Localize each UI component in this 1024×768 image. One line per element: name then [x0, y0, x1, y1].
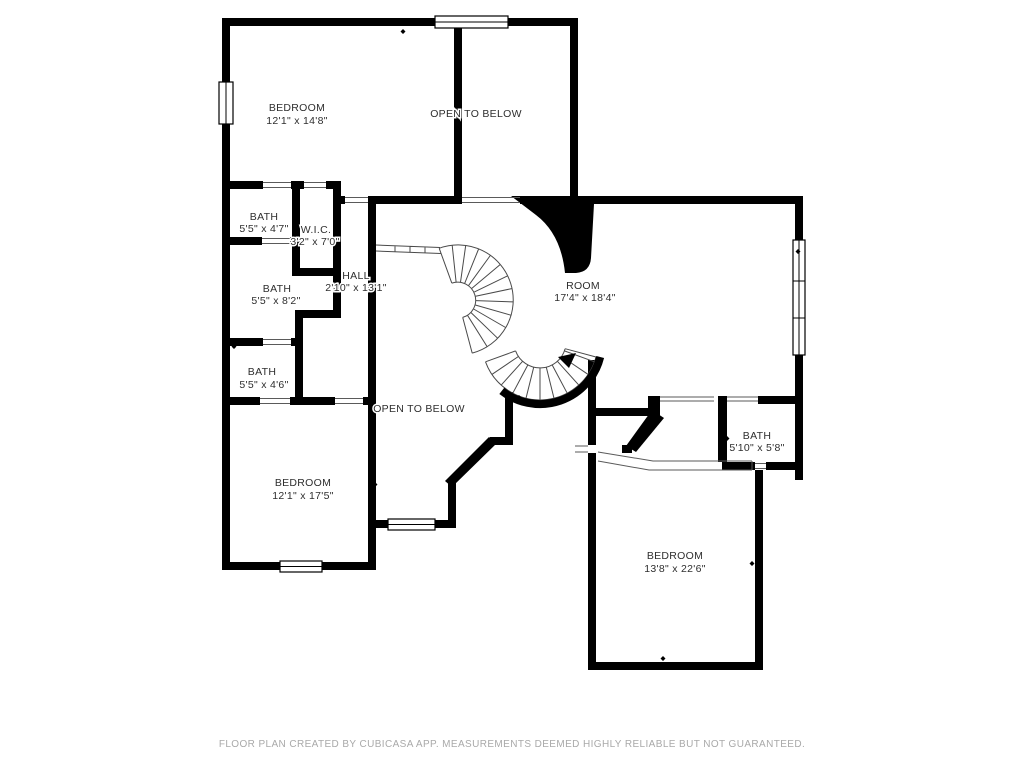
- wall-segment: [290, 397, 335, 405]
- wall-segment: [222, 18, 578, 26]
- room-dims: 5'5" x 8'2": [251, 295, 300, 307]
- room-dims: 12'1" x 17'5": [272, 490, 334, 502]
- room-label: BEDROOM: [269, 102, 325, 114]
- floor-plan-canvas: BEDROOM 12'1" x 14'8" OPEN TO BELOW BATH…: [0, 0, 1024, 768]
- wall-segment: [368, 204, 376, 570]
- wall-segment: [592, 408, 650, 416]
- wall-segment: [588, 662, 763, 670]
- room-label: BATH: [250, 211, 278, 223]
- window: [388, 519, 435, 530]
- wall-segment: [588, 453, 596, 670]
- room-dims: 5'5" x 4'7": [239, 223, 288, 235]
- room-label: OPEN TO BELOW: [373, 403, 465, 415]
- wall-segment: [222, 338, 263, 346]
- window: [280, 561, 322, 572]
- wall-segment: [722, 462, 755, 470]
- wall-segment: [368, 196, 462, 204]
- room-dims: 5'10" x 5'8": [729, 442, 784, 454]
- room-dims: 17'4" x 18'4": [554, 292, 616, 304]
- window: [435, 16, 508, 28]
- room-label: OPEN TO BELOW: [430, 108, 522, 120]
- wall-segment: [758, 396, 803, 404]
- wall-segment: [578, 196, 803, 204]
- window: [219, 82, 233, 124]
- wall-segment: [333, 181, 341, 318]
- stair-outer-wall-arc: [502, 357, 600, 404]
- room-dims: 3'2" x 7'0": [290, 236, 339, 248]
- room-dims: 12'1" x 14'8": [266, 115, 328, 127]
- wall-diagonal: [445, 437, 497, 487]
- wall-segment: [295, 310, 303, 405]
- room-dims: 2'10" x 13'1": [325, 282, 387, 294]
- wall-segment: [292, 181, 300, 276]
- stair-direction-arrow-icon: [558, 353, 576, 368]
- wall-segment: [570, 18, 578, 196]
- wall-segment: [755, 470, 763, 670]
- room-labels: BEDROOM 12'1" x 14'8" OPEN TO BELOW BATH…: [239, 102, 784, 575]
- wall-segment: [292, 268, 341, 276]
- room-label: BATH: [263, 283, 291, 295]
- room-label: HALL: [342, 270, 369, 282]
- wall-segment: [795, 470, 803, 480]
- wall-segment: [766, 462, 803, 470]
- wall-segment: [222, 237, 262, 245]
- curved-wall: [511, 196, 594, 273]
- floor-plan-page: BEDROOM 12'1" x 14'8" OPEN TO BELOW BATH…: [0, 0, 1024, 768]
- room-label: BATH: [248, 366, 276, 378]
- footer-disclaimer: FLOOR PLAN CREATED BY CUBICASA APP. MEAS…: [219, 739, 805, 750]
- stair-rail: [439, 245, 513, 353]
- wall-segment: [622, 445, 632, 453]
- room-dims: 13'8" x 22'6": [644, 563, 706, 575]
- room-label: BATH: [743, 430, 771, 442]
- wall-segment: [222, 181, 263, 189]
- stair-rail: [376, 245, 441, 254]
- room-dims: 5'5" x 4'6": [239, 379, 288, 391]
- wall-segment: [222, 397, 260, 405]
- room-label: BEDROOM: [647, 550, 703, 562]
- window: [793, 240, 805, 355]
- room-label: ROOM: [566, 280, 600, 292]
- room-label: W.I.C.: [301, 224, 331, 236]
- wall-segment: [718, 396, 727, 462]
- room-label: BEDROOM: [275, 477, 331, 489]
